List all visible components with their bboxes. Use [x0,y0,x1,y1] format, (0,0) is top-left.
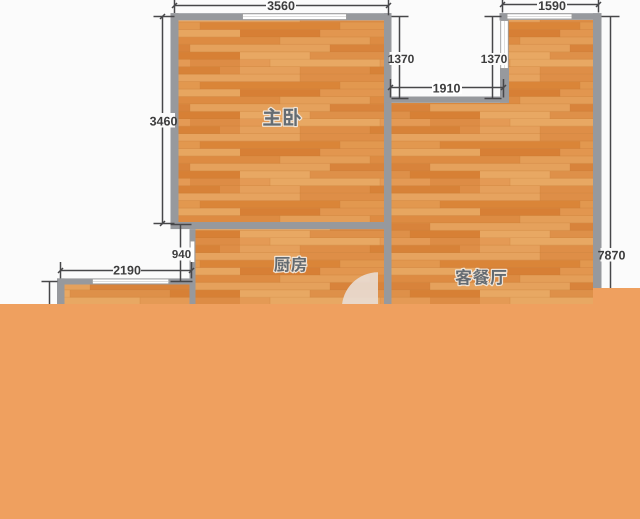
svg-text:940: 940 [172,249,191,261]
svg-text:2190: 2190 [113,264,141,278]
svg-text:3560: 3560 [267,0,295,13]
svg-text:1910: 1910 [433,82,461,96]
svg-text:3460: 3460 [150,115,178,129]
svg-text:7870: 7870 [598,248,626,262]
svg-text:1370: 1370 [481,52,508,66]
svg-text:1590: 1590 [538,0,566,13]
svg-text:1370: 1370 [388,52,415,66]
